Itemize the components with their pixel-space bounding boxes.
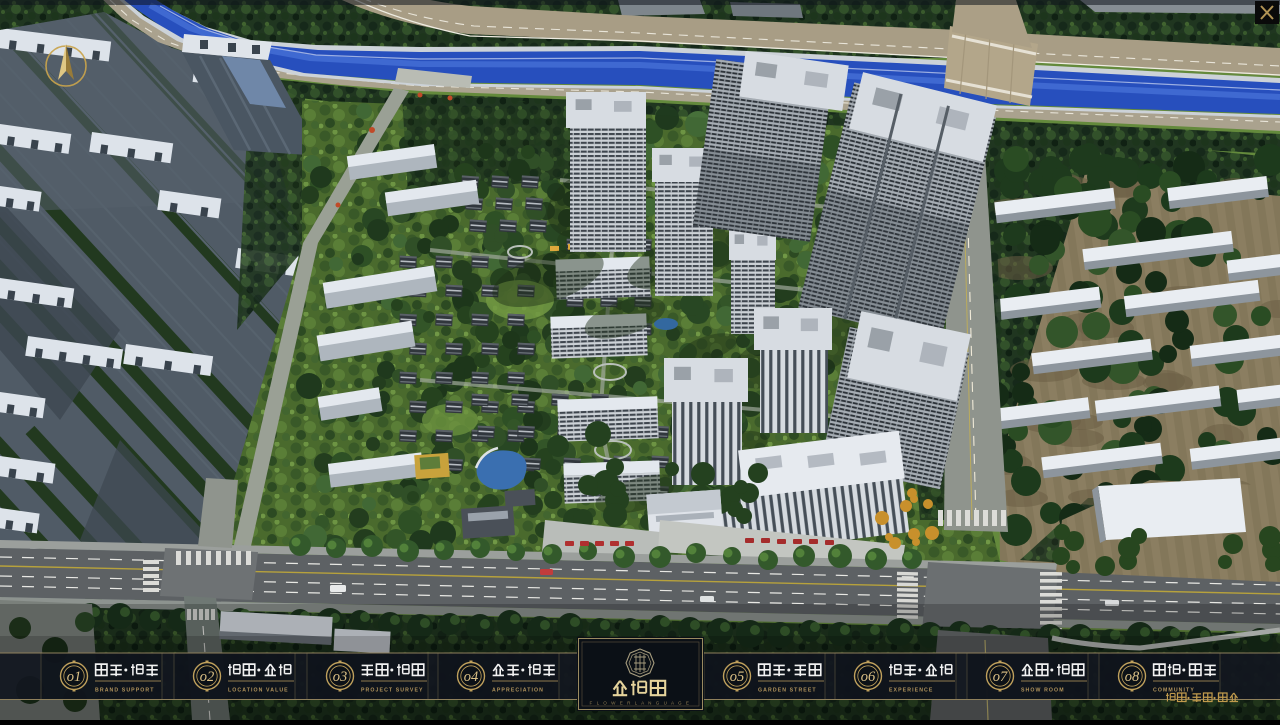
svg-text:o4: o4 (464, 669, 479, 685)
svg-text:APPRECIATION: APPRECIATION (492, 688, 544, 694)
svg-text:o3: o3 (333, 669, 348, 685)
svg-text:COMMUNITY: COMMUNITY (1153, 688, 1195, 694)
svg-text:o1: o1 (67, 669, 82, 685)
svg-text:o7: o7 (993, 669, 1008, 685)
svg-text:PROJECT SURVEY: PROJECT SURVEY (361, 688, 424, 694)
svg-text:F L O W E R L A N G U A G E: F L O W E R L A N G U A G E (590, 701, 691, 706)
svg-text:GARDEN STREET: GARDEN STREET (758, 688, 817, 694)
svg-text:LOCATION VALUE: LOCATION VALUE (228, 688, 289, 694)
svg-text:o8: o8 (1125, 669, 1140, 685)
svg-text:o2: o2 (200, 669, 215, 685)
svg-text:EXPERIENCE: EXPERIENCE (889, 688, 933, 694)
svg-text:o6: o6 (861, 669, 876, 685)
svg-text:o5: o5 (730, 669, 745, 685)
svg-text:SHOW ROOM: SHOW ROOM (1021, 688, 1065, 694)
svg-text:BRAND SUPPORT: BRAND SUPPORT (95, 688, 155, 694)
